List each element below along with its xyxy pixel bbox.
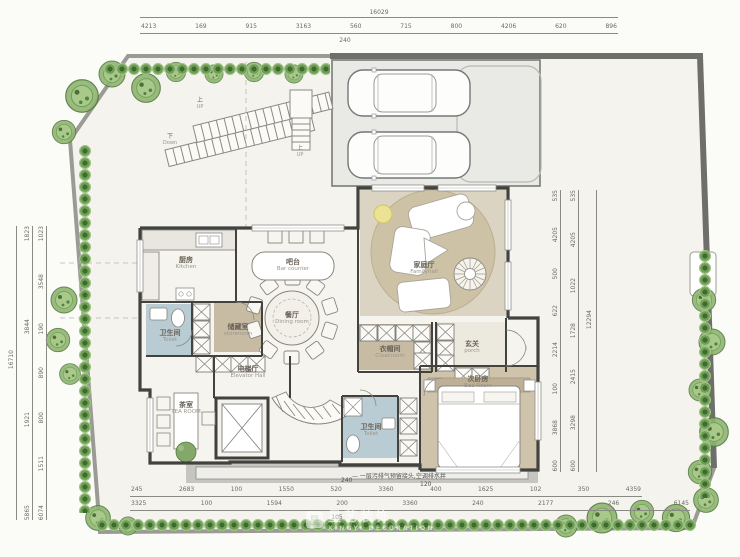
dim-left-inner-line	[46, 226, 47, 520]
label-stair-up1: 上 UP	[197, 98, 204, 110]
bed	[424, 378, 535, 468]
dim-left-total-line	[16, 226, 17, 520]
dim-top-total: 16029	[140, 9, 618, 16]
dim-left-outer: 1823384419215865	[22, 226, 32, 520]
dim-right-total-line	[596, 190, 597, 472]
floor-plan-canvas: 16029 421316991531635607158004206620896 …	[0, 0, 740, 557]
dim-top-row-line	[140, 33, 618, 34]
label-stair-up2: 上 UP	[297, 146, 304, 158]
dim-right-total: 12294	[586, 310, 593, 329]
lamp-table-icon	[374, 205, 392, 223]
dim-right-outer: 53542051022172824153298600	[568, 190, 578, 472]
vent-note-num2: 120	[420, 481, 431, 488]
car-icon	[348, 130, 470, 180]
hedge-bottom	[96, 518, 696, 532]
hedge-left	[78, 145, 92, 513]
dim-bottom-row1-line	[130, 496, 642, 497]
dim-right-inner: 535420550062222141003868600	[550, 190, 560, 472]
hedge-right	[698, 250, 712, 498]
dim-top-total-line	[140, 17, 618, 18]
vent-note-num1: 240	[341, 477, 352, 484]
dim-left-total: 16710	[8, 350, 15, 369]
dim-right-outer-line	[578, 190, 579, 472]
dim-bottom-row1: 24526831001550520336040016251023504359	[130, 487, 642, 494]
label-stair-down: 下 Down	[163, 134, 177, 146]
dim-right-inner-line	[560, 190, 561, 472]
car-icon	[348, 68, 470, 118]
dim-bottom-sub: 105	[322, 514, 352, 521]
dim-left-outer-line	[32, 226, 33, 520]
dim-bottom-row2-line	[130, 510, 690, 511]
elevator	[216, 398, 268, 458]
dim-left-inner: 1023354819089080015116074	[36, 226, 46, 520]
dim-bottom-row2: 33251001594200336024021772466145	[130, 501, 690, 508]
vent-note: — 一层污排气预留接头,空调排水井	[352, 471, 446, 480]
hedge-top	[104, 62, 330, 76]
dim-top-row: 421316991531635607158004206620896	[140, 24, 618, 31]
dim-top-sub: 240	[330, 37, 360, 44]
rattan-chair-icon	[454, 258, 486, 290]
